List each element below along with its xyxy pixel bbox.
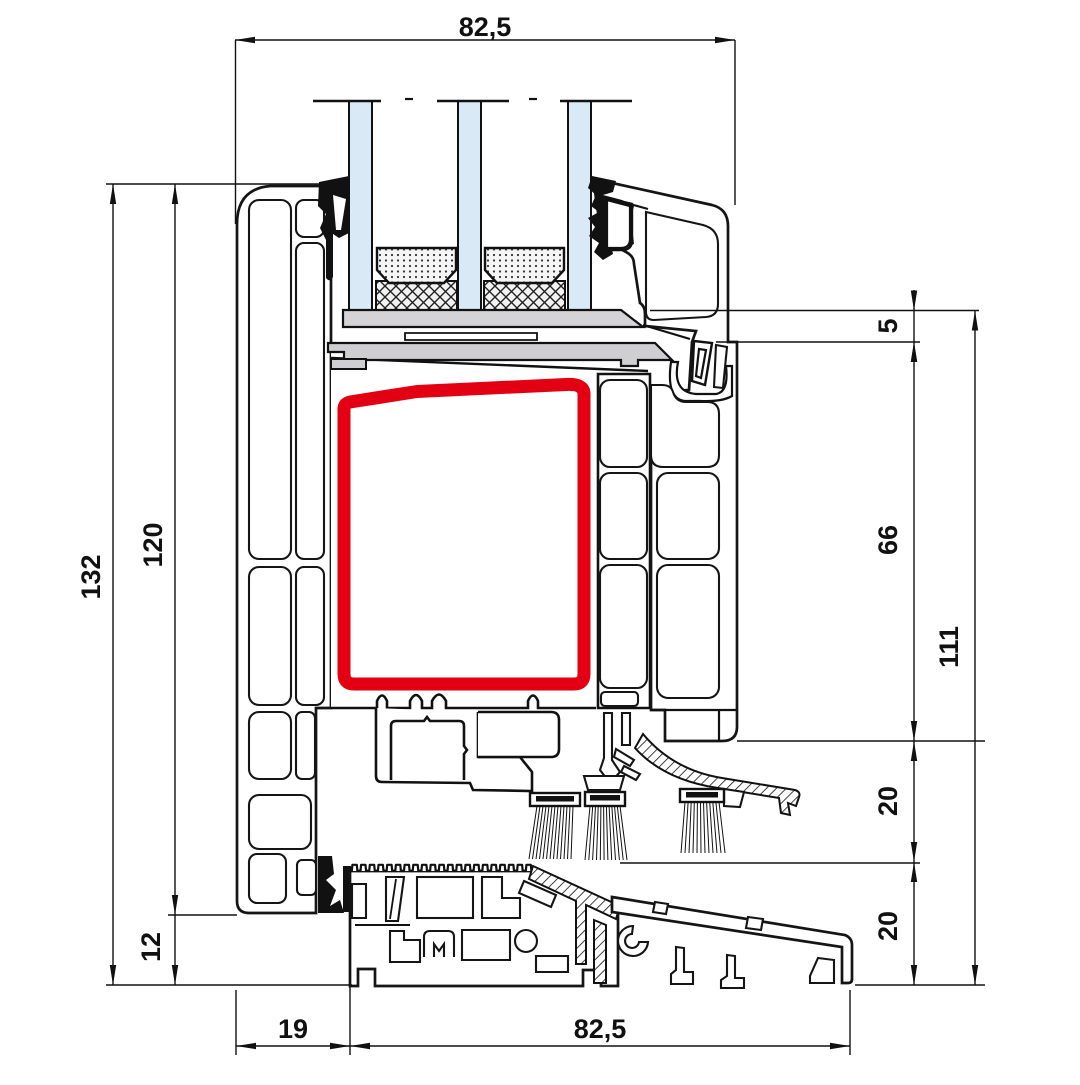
svg-text:20: 20 bbox=[873, 911, 903, 941]
svg-text:66: 66 bbox=[873, 525, 903, 555]
svg-text:20: 20 bbox=[873, 786, 903, 816]
svg-text:111: 111 bbox=[934, 626, 964, 668]
svg-text:120: 120 bbox=[138, 522, 168, 567]
svg-text:82,5: 82,5 bbox=[574, 1014, 627, 1044]
svg-text:12: 12 bbox=[136, 932, 166, 962]
svg-text:82,5: 82,5 bbox=[459, 12, 512, 42]
svg-text:19: 19 bbox=[278, 1014, 308, 1044]
svg-text:5: 5 bbox=[873, 318, 903, 333]
svg-text:132: 132 bbox=[76, 554, 106, 599]
